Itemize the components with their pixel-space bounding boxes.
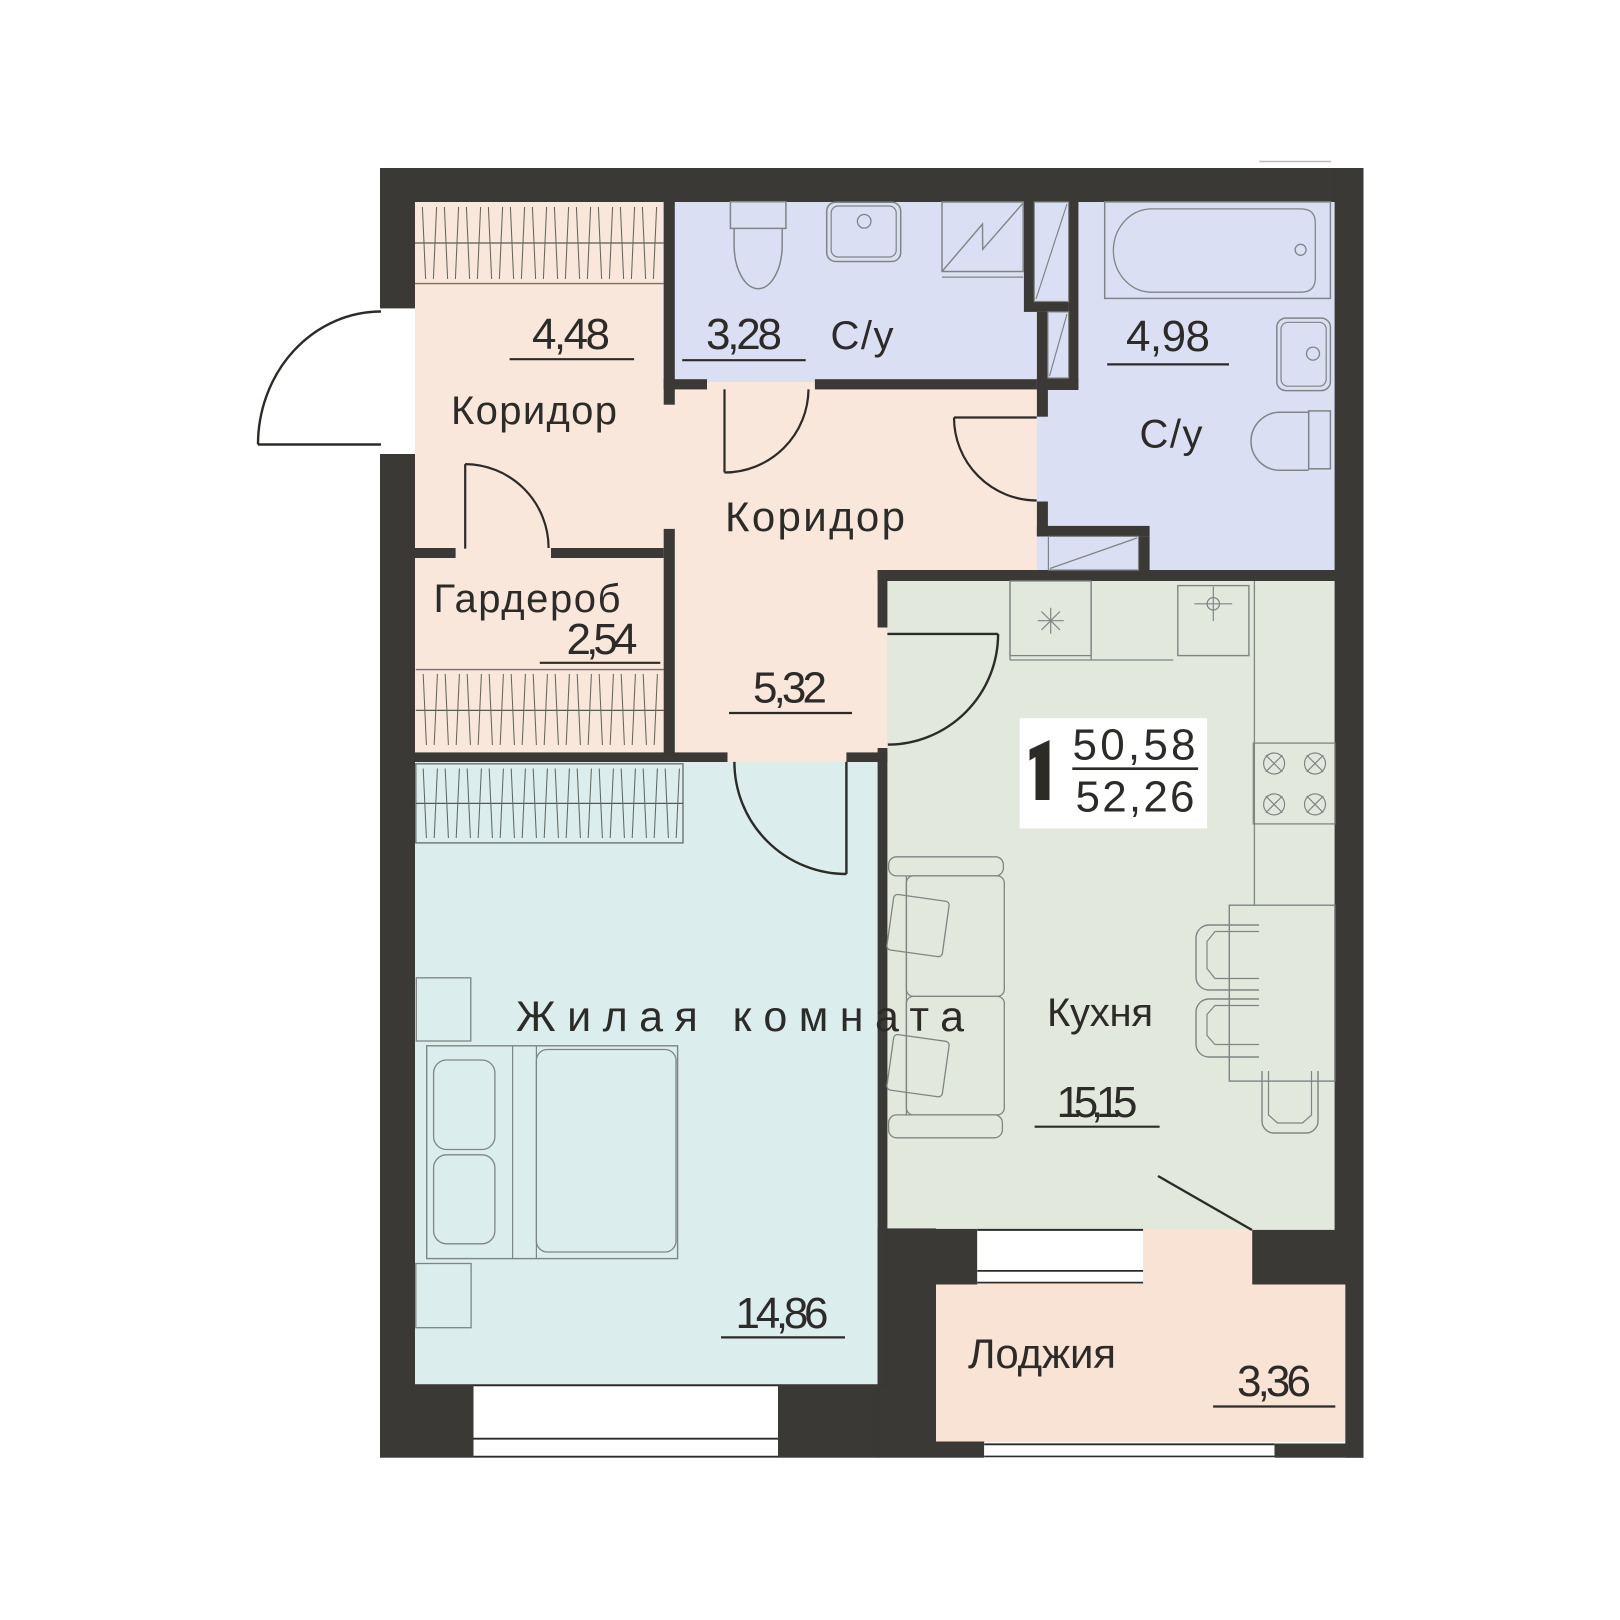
svg-text:5,32: 5,32 xyxy=(753,664,827,713)
svg-text:14,86: 14,86 xyxy=(736,1289,829,1338)
svg-text:Лоджия: Лоджия xyxy=(968,1330,1116,1377)
svg-text:4,48: 4,48 xyxy=(532,310,610,359)
svg-text:50,58: 50,58 xyxy=(1073,721,1196,770)
svg-text:4,98: 4,98 xyxy=(1126,312,1210,361)
svg-text:С/у: С/у xyxy=(831,314,894,358)
svg-text:С/у: С/у xyxy=(1140,413,1203,457)
svg-text:Коридор: Коридор xyxy=(725,493,905,540)
svg-text:3,28: 3,28 xyxy=(706,310,782,359)
svg-text:2,54: 2,54 xyxy=(567,615,638,664)
svg-text:Кухня: Кухня xyxy=(1047,991,1153,1035)
svg-text:Жилая комната: Жилая комната xyxy=(516,993,964,1041)
svg-text:Коридор: Коридор xyxy=(451,389,617,433)
svg-text:3,36: 3,36 xyxy=(1237,1357,1311,1406)
svg-text:52,26: 52,26 xyxy=(1076,773,1195,822)
svg-text:15,15: 15,15 xyxy=(1057,1078,1138,1127)
